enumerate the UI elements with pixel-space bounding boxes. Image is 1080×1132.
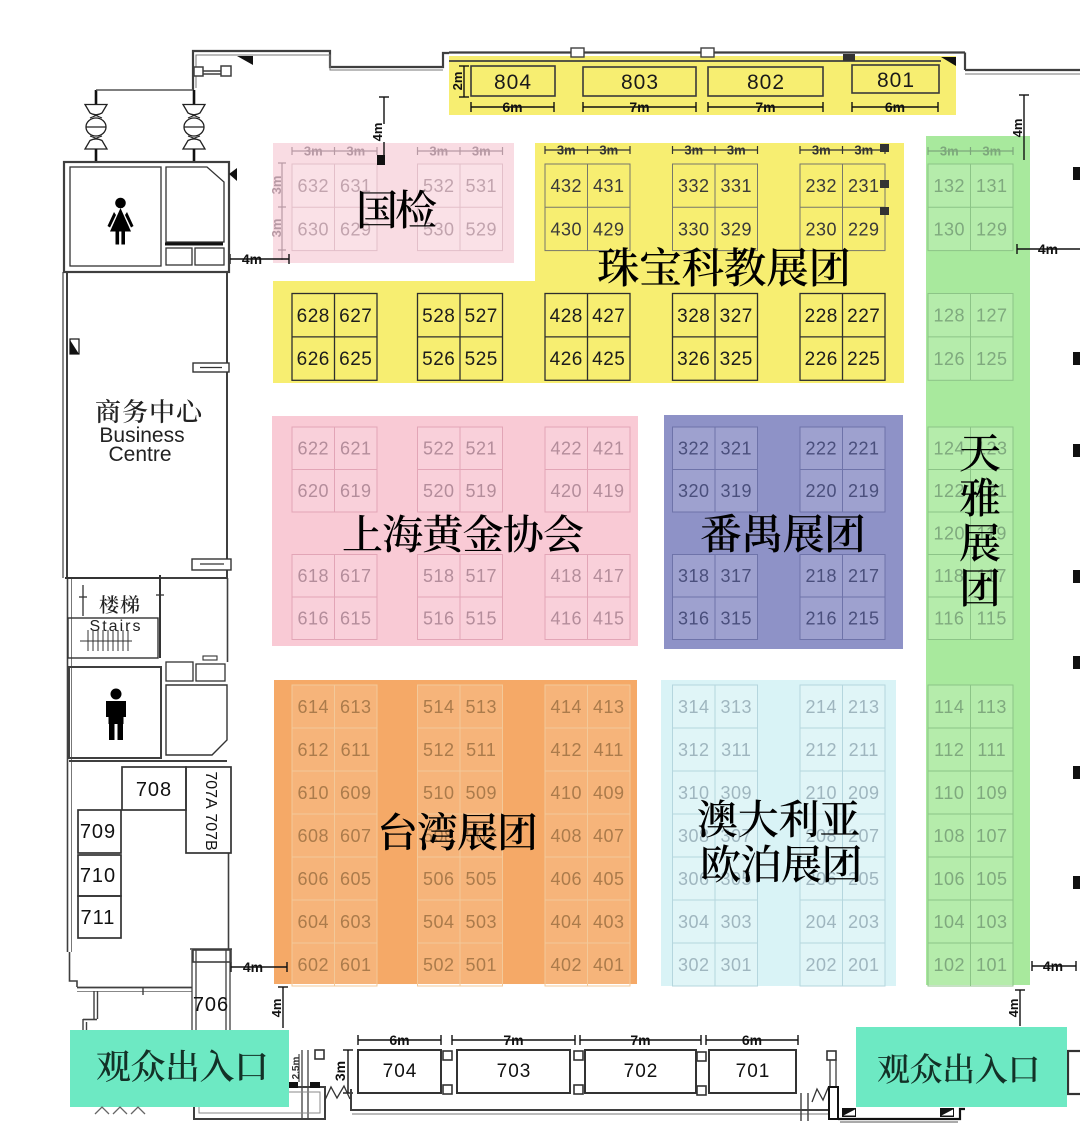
svg-text:602: 602: [297, 955, 329, 975]
svg-text:609: 609: [340, 783, 372, 803]
svg-text:509: 509: [465, 783, 497, 803]
svg-text:403: 403: [593, 912, 625, 932]
svg-text:629: 629: [340, 219, 372, 239]
svg-text:415: 415: [593, 609, 625, 629]
svg-text:512: 512: [423, 740, 455, 760]
svg-text:314: 314: [678, 697, 710, 717]
svg-text:219: 219: [848, 481, 880, 501]
svg-text:216: 216: [805, 609, 837, 629]
svg-text:301: 301: [720, 955, 752, 975]
svg-text:213: 213: [848, 697, 880, 717]
svg-text:3m: 3m: [982, 144, 1001, 159]
svg-text:610: 610: [297, 783, 329, 803]
svg-text:120: 120: [933, 524, 965, 544]
svg-text:709: 709: [80, 821, 116, 843]
svg-text:409: 409: [593, 783, 625, 803]
svg-text:208: 208: [805, 826, 837, 846]
svg-text:3m: 3m: [269, 176, 284, 195]
svg-text:4m: 4m: [1006, 999, 1021, 1018]
svg-text:522: 522: [423, 439, 455, 459]
svg-text:3m: 3m: [684, 143, 703, 158]
svg-text:421: 421: [593, 439, 625, 459]
svg-text:202: 202: [805, 955, 837, 975]
svg-text:704: 704: [383, 1061, 418, 1082]
svg-text:319: 319: [720, 481, 752, 501]
svg-text:7m: 7m: [629, 99, 649, 115]
svg-text:630: 630: [297, 219, 329, 239]
svg-text:614: 614: [297, 697, 329, 717]
svg-text:106: 106: [933, 869, 965, 889]
svg-text:115: 115: [977, 609, 1007, 629]
svg-text:320: 320: [678, 481, 710, 501]
svg-text:425: 425: [592, 349, 625, 370]
svg-text:530: 530: [423, 219, 455, 239]
svg-text:620: 620: [297, 481, 329, 501]
svg-text:430: 430: [550, 219, 582, 239]
svg-text:420: 420: [550, 481, 582, 501]
svg-text:617: 617: [340, 566, 372, 586]
svg-text:529: 529: [465, 219, 497, 239]
svg-text:317: 317: [720, 566, 752, 586]
svg-text:105: 105: [976, 869, 1008, 889]
svg-text:410: 410: [550, 783, 582, 803]
svg-text:708: 708: [136, 779, 172, 801]
svg-text:7m: 7m: [755, 99, 775, 115]
svg-text:407: 407: [593, 826, 625, 846]
svg-text:3m: 3m: [304, 144, 323, 159]
svg-text:625: 625: [339, 349, 372, 370]
svg-text:414: 414: [550, 697, 582, 717]
svg-text:613: 613: [340, 697, 372, 717]
svg-text:129: 129: [976, 219, 1008, 239]
svg-text:321: 321: [720, 439, 752, 459]
svg-text:113: 113: [977, 697, 1007, 717]
svg-text:506: 506: [423, 869, 455, 889]
svg-text:4m: 4m: [243, 959, 263, 975]
svg-text:229: 229: [848, 219, 880, 239]
svg-text:227: 227: [847, 306, 880, 327]
svg-text:111: 111: [977, 740, 1006, 760]
svg-text:404: 404: [550, 912, 582, 932]
svg-text:419: 419: [593, 481, 625, 501]
svg-text:312: 312: [678, 740, 710, 760]
svg-text:201: 201: [848, 955, 880, 975]
svg-text:706: 706: [193, 994, 229, 1016]
svg-text:615: 615: [340, 609, 372, 629]
svg-text:612: 612: [297, 740, 329, 760]
svg-text:310: 310: [678, 783, 710, 803]
svg-text:707A: 707A: [202, 771, 219, 809]
svg-text:302: 302: [678, 955, 710, 975]
svg-text:402: 402: [550, 955, 582, 975]
svg-text:3m: 3m: [812, 143, 831, 158]
svg-text:3m: 3m: [557, 143, 576, 158]
svg-text:518: 518: [423, 566, 455, 586]
svg-text:3m: 3m: [332, 1061, 348, 1081]
svg-text:124: 124: [933, 439, 965, 459]
svg-text:3m: 3m: [346, 144, 365, 159]
svg-text:408: 408: [550, 826, 582, 846]
svg-text:3m: 3m: [599, 143, 618, 158]
svg-text:118: 118: [934, 566, 964, 586]
svg-text:412: 412: [550, 740, 582, 760]
svg-text:112: 112: [934, 740, 964, 760]
svg-text:122: 122: [933, 481, 965, 501]
svg-text:231: 231: [848, 176, 880, 196]
svg-text:521: 521: [465, 439, 497, 459]
svg-text:318: 318: [678, 566, 710, 586]
svg-text:622: 622: [297, 439, 329, 459]
svg-text:114: 114: [934, 697, 964, 717]
svg-text:304: 304: [678, 912, 710, 932]
svg-text:520: 520: [423, 481, 455, 501]
svg-text:501: 501: [465, 955, 497, 975]
svg-text:303: 303: [720, 912, 752, 932]
svg-text:220: 220: [805, 481, 837, 501]
svg-text:401: 401: [593, 955, 625, 975]
svg-text:332: 332: [678, 176, 710, 196]
svg-text:230: 230: [805, 219, 837, 239]
svg-text:517: 517: [465, 566, 497, 586]
svg-text:422: 422: [550, 439, 582, 459]
svg-text:331: 331: [720, 176, 752, 196]
svg-text:2m: 2m: [450, 72, 465, 91]
svg-text:110: 110: [934, 783, 964, 803]
svg-text:4m: 4m: [1010, 119, 1025, 138]
svg-text:514: 514: [423, 697, 455, 717]
svg-text:6m: 6m: [389, 1032, 409, 1048]
svg-text:217: 217: [848, 566, 880, 586]
svg-text:104: 104: [933, 912, 965, 932]
svg-text:803: 803: [621, 71, 659, 94]
svg-text:128: 128: [933, 306, 965, 326]
svg-text:116: 116: [934, 609, 964, 629]
svg-text:405: 405: [593, 869, 625, 889]
svg-text:211: 211: [849, 740, 879, 760]
svg-text:315: 315: [720, 609, 752, 629]
svg-text:307: 307: [720, 826, 752, 846]
svg-text:309: 309: [720, 783, 752, 803]
svg-text:4m: 4m: [1043, 958, 1063, 974]
svg-text:627: 627: [339, 306, 372, 327]
svg-text:701: 701: [736, 1061, 771, 1082]
svg-text:3m: 3m: [727, 143, 746, 158]
svg-text:711: 711: [81, 907, 116, 929]
svg-text:4m: 4m: [1038, 241, 1058, 257]
svg-text:413: 413: [593, 697, 625, 717]
svg-text:326: 326: [677, 349, 710, 370]
svg-text:127: 127: [976, 306, 1008, 326]
svg-text:103: 103: [976, 912, 1008, 932]
svg-text:628: 628: [297, 306, 330, 327]
svg-text:515: 515: [465, 609, 497, 629]
svg-text:132: 132: [933, 176, 965, 196]
svg-text:510: 510: [423, 783, 455, 803]
svg-text:406: 406: [550, 869, 582, 889]
svg-text:527: 527: [465, 306, 498, 327]
svg-text:505: 505: [465, 869, 497, 889]
svg-text:504: 504: [423, 912, 455, 932]
svg-text:619: 619: [340, 481, 372, 501]
svg-text:707B: 707B: [202, 813, 219, 850]
svg-text:432: 432: [550, 176, 582, 196]
svg-text:418: 418: [550, 566, 582, 586]
svg-text:4m: 4m: [242, 251, 262, 267]
svg-text:221: 221: [848, 439, 880, 459]
svg-text:426: 426: [550, 349, 583, 370]
svg-text:626: 626: [297, 349, 330, 370]
svg-text:328: 328: [677, 306, 710, 327]
svg-text:130: 130: [933, 219, 965, 239]
svg-text:618: 618: [297, 566, 329, 586]
svg-text:204: 204: [805, 912, 837, 932]
svg-text:3m: 3m: [429, 144, 448, 159]
svg-text:4m: 4m: [370, 123, 385, 142]
svg-text:608: 608: [297, 826, 329, 846]
svg-text:702: 702: [624, 1061, 659, 1082]
svg-text:427: 427: [592, 306, 625, 327]
svg-text:526: 526: [422, 349, 455, 370]
svg-text:532: 532: [423, 176, 455, 196]
svg-text:616: 616: [297, 609, 329, 629]
svg-text:109: 109: [976, 783, 1008, 803]
svg-text:429: 429: [593, 219, 625, 239]
svg-text:212: 212: [805, 740, 837, 760]
svg-text:102: 102: [933, 955, 965, 975]
svg-text:330: 330: [678, 219, 710, 239]
svg-text:131: 131: [976, 176, 1008, 196]
svg-text:621: 621: [340, 439, 372, 459]
svg-text:225: 225: [847, 349, 880, 370]
svg-text:411: 411: [594, 740, 624, 760]
svg-text:606: 606: [297, 869, 329, 889]
svg-text:Centre: Centre: [108, 443, 171, 466]
svg-text:531: 531: [465, 176, 497, 196]
svg-text:710: 710: [80, 865, 116, 887]
svg-text:603: 603: [340, 912, 372, 932]
svg-text:431: 431: [593, 176, 625, 196]
svg-text:503: 503: [465, 912, 497, 932]
svg-text:605: 605: [340, 869, 372, 889]
svg-text:7m: 7m: [503, 1032, 523, 1048]
svg-text:804: 804: [494, 71, 532, 94]
svg-text:2.5m: 2.5m: [291, 1056, 302, 1079]
svg-text:516: 516: [423, 609, 455, 629]
svg-text:108: 108: [933, 826, 965, 846]
svg-text:3m: 3m: [940, 144, 959, 159]
svg-text:801: 801: [877, 69, 915, 92]
svg-text:322: 322: [678, 439, 710, 459]
svg-text:502: 502: [423, 955, 455, 975]
svg-text:7m: 7m: [630, 1032, 650, 1048]
svg-text:703: 703: [497, 1061, 532, 1082]
svg-text:207: 207: [848, 826, 880, 846]
svg-text:316: 316: [678, 609, 710, 629]
svg-text:101: 101: [976, 955, 1008, 975]
svg-text:329: 329: [720, 219, 752, 239]
svg-text:222: 222: [805, 439, 837, 459]
svg-text:119: 119: [977, 524, 1007, 544]
svg-text:519: 519: [465, 481, 497, 501]
svg-text:6m: 6m: [885, 99, 905, 115]
svg-text:325: 325: [720, 349, 753, 370]
svg-text:313: 313: [720, 697, 752, 717]
svg-text:311: 311: [721, 740, 751, 760]
svg-text:Stairs: Stairs: [90, 618, 143, 635]
svg-text:218: 218: [805, 566, 837, 586]
svg-text:125: 125: [976, 349, 1008, 369]
svg-text:3m: 3m: [269, 219, 284, 238]
svg-text:232: 232: [805, 176, 837, 196]
svg-text:607: 607: [340, 826, 372, 846]
svg-text:3m: 3m: [854, 143, 873, 158]
svg-text:525: 525: [465, 349, 498, 370]
svg-text:226: 226: [805, 349, 838, 370]
svg-text:601: 601: [340, 955, 372, 975]
svg-text:126: 126: [933, 349, 965, 369]
svg-text:611: 611: [341, 740, 371, 760]
svg-text:209: 209: [848, 783, 880, 803]
svg-text:228: 228: [805, 306, 838, 327]
svg-text:417: 417: [593, 566, 625, 586]
svg-text:428: 428: [550, 306, 583, 327]
svg-text:632: 632: [297, 176, 329, 196]
svg-text:6m: 6m: [742, 1032, 762, 1048]
svg-text:107: 107: [976, 826, 1008, 846]
svg-text:210: 210: [805, 783, 837, 803]
svg-text:214: 214: [805, 697, 837, 717]
svg-text:513: 513: [465, 697, 497, 717]
svg-text:4m: 4m: [269, 999, 284, 1018]
svg-text:802: 802: [747, 71, 785, 94]
svg-text:3m: 3m: [472, 144, 491, 159]
svg-text:203: 203: [848, 912, 880, 932]
svg-text:6m: 6m: [502, 99, 522, 115]
svg-text:215: 215: [848, 609, 880, 629]
svg-text:604: 604: [297, 912, 329, 932]
svg-text:416: 416: [550, 609, 582, 629]
svg-text:511: 511: [466, 740, 496, 760]
svg-text:327: 327: [720, 306, 753, 327]
svg-text:528: 528: [422, 306, 455, 327]
